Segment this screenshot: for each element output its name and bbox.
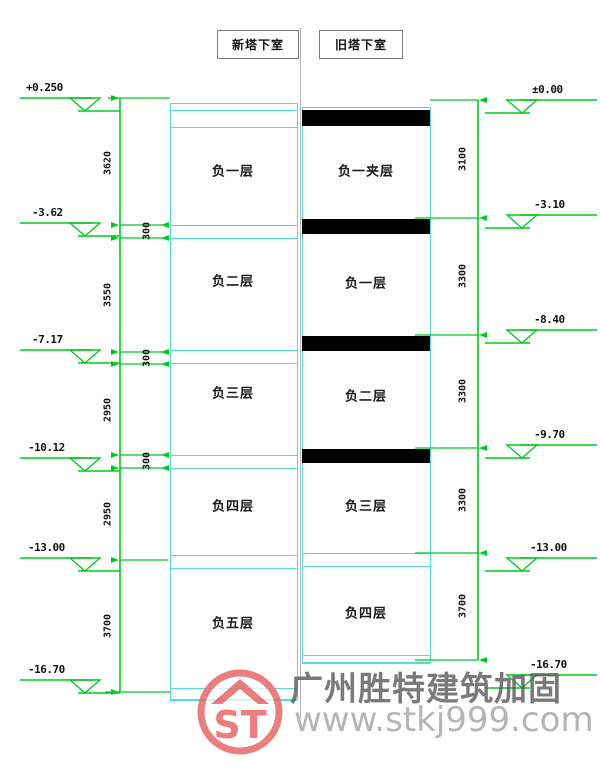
dim-arrow: [161, 222, 169, 228]
left-building-slab-line: [170, 350, 297, 351]
floor-label: 负一夹层: [306, 161, 426, 180]
floor-label: 负三层: [306, 496, 426, 515]
right-section-title: 旧塔下室: [335, 36, 387, 53]
dimension-label: 3100: [458, 147, 469, 171]
dimension-label: 3700: [458, 594, 469, 618]
logo-monogram: ST: [213, 703, 266, 747]
watermark-logo: ST: [194, 666, 286, 758]
left-building-slab-line: [170, 225, 297, 226]
left-building-line: [170, 110, 297, 111]
left-building-wall-right: [297, 103, 298, 700]
elevation-label: -13.00: [530, 541, 567, 554]
dimension-label: 3700: [103, 614, 114, 638]
dim-arrow: [161, 452, 169, 458]
dim-arrow: [111, 222, 119, 228]
header-box-right: 旧塔下室: [319, 30, 403, 59]
dimension-label: 3300: [458, 379, 469, 403]
floor-label: 负二层: [306, 386, 426, 405]
floor-label: 负四层: [173, 496, 293, 515]
dim-arrow: [479, 97, 487, 103]
left-building-slab-line: [170, 363, 297, 364]
elevation-label: +0.250: [26, 81, 63, 94]
dim-arrow: [111, 235, 119, 241]
dimension-label: 3620: [103, 151, 114, 175]
left-building-line: [170, 127, 297, 128]
dimension-label: 300: [142, 222, 153, 240]
right-building-black-slab: [302, 110, 430, 126]
right-building-slab-line: [302, 566, 430, 567]
elevation-label: ±0.00: [532, 83, 563, 96]
dim-arrow: [479, 215, 487, 221]
left-building-slab-line: [170, 468, 297, 469]
floor-label: 负三层: [173, 383, 293, 402]
left-building-slab-line: [170, 238, 297, 239]
left-building-slab-line: [170, 568, 297, 569]
header-box-left: 新塔下室: [217, 30, 299, 59]
right-building-bottom-line: [302, 655, 430, 656]
left-building-slab-line: [170, 455, 297, 456]
watermark-website: www.stkj999.com: [294, 700, 594, 740]
elevation-flag: [20, 558, 120, 571]
floor-label: 负一层: [173, 161, 293, 180]
left-building-wall-left: [170, 103, 171, 700]
floor-label: 负五层: [173, 613, 293, 632]
dim-arrow: [111, 557, 119, 563]
floor-label: 负一层: [306, 273, 426, 292]
elevation-flag: [20, 223, 120, 236]
elevation-flag: [20, 680, 120, 693]
dim-arrow: [479, 550, 487, 556]
dimension-label: 3300: [458, 264, 469, 288]
dim-arrow: [479, 445, 487, 451]
floor-label: 负四层: [306, 603, 426, 622]
dim-arrow: [161, 349, 169, 355]
elevation-label: -13.00: [28, 541, 65, 554]
left-building-line: [170, 103, 297, 104]
dim-arrow: [161, 235, 169, 241]
elevation-flag: [20, 350, 120, 363]
dim-arrow: [111, 689, 119, 695]
right-building-line: [302, 107, 430, 108]
right-building-black-slab: [302, 449, 430, 463]
dim-arrow: [479, 332, 487, 338]
dimension-label: 300: [142, 349, 153, 367]
center-axis-line: [300, 28, 301, 718]
elevation-label: -3.62: [32, 206, 63, 219]
dim-arrow: [111, 465, 119, 471]
dim-arrow: [161, 465, 169, 471]
dimension-label: 3300: [458, 488, 469, 512]
right-building-black-slab: [302, 219, 430, 234]
dimension-label: 3550: [103, 283, 114, 307]
elevation-label: -9.70: [534, 428, 565, 441]
floor-label: 负二层: [173, 271, 293, 290]
elevation-label: -7.17: [32, 333, 63, 346]
dimension-label: 2950: [103, 502, 114, 526]
dim-arrow: [161, 361, 169, 367]
elevation-label: -16.70: [28, 663, 65, 676]
elevation-label: -8.40: [534, 313, 565, 326]
right-building-wall-right: [430, 107, 431, 663]
right-building-black-slab: [302, 336, 430, 351]
dim-arrow: [111, 452, 119, 458]
dimension-label: 300: [142, 452, 153, 470]
right-building-slab-line: [302, 553, 430, 554]
elevation-flag: [485, 445, 597, 458]
right-building-wall-left: [302, 107, 303, 663]
elevation-flag: [20, 458, 120, 471]
dimension-label: 2950: [103, 398, 114, 422]
elevation-label: -3.10: [534, 198, 565, 211]
elevation-flag: [485, 215, 597, 228]
elevation-flag: [20, 98, 120, 111]
elevation-flag: [485, 100, 597, 113]
dim-arrow: [111, 95, 119, 101]
elevation-flag: [485, 558, 597, 571]
left-section-title: 新塔下室: [232, 36, 284, 53]
elevation-flag: [485, 330, 597, 343]
left-building-slab-line: [170, 555, 297, 556]
dim-arrow: [111, 349, 119, 355]
dim-arrow: [111, 361, 119, 367]
elevation-label: -10.12: [28, 441, 65, 454]
cad-drawing-canvas: 新塔下室 旧塔下室: [0, 0, 600, 776]
